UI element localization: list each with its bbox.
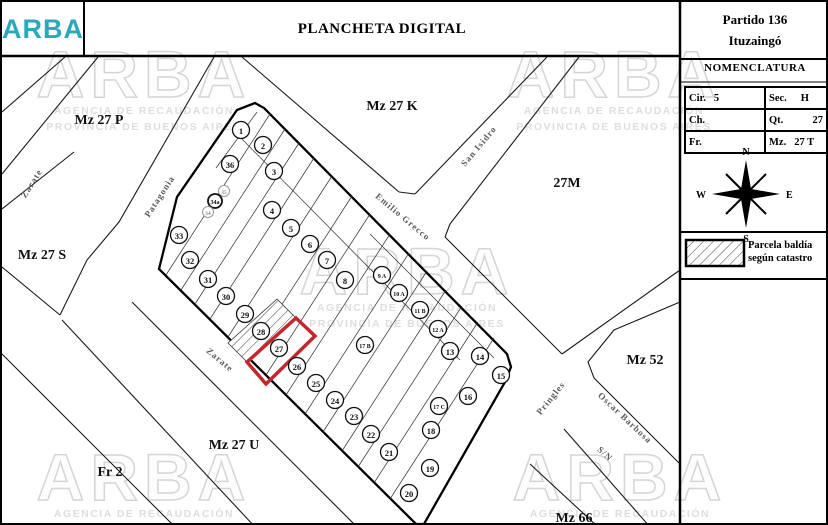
street-line xyxy=(562,270,680,354)
cell-ch: Ch. xyxy=(685,109,765,131)
legend-hatch-swatch xyxy=(686,240,744,266)
partido-number: Partido 136 xyxy=(680,9,828,30)
cell-value: 27 T xyxy=(794,137,814,148)
parcel-number: 9 A xyxy=(378,274,387,280)
block-label: Mz 27 S xyxy=(18,248,66,263)
block-label: 27M xyxy=(553,176,580,191)
parcel-number: 3 xyxy=(272,167,276,177)
table-row: Fr. Mz. 27 T xyxy=(685,131,827,153)
partido-name: Ituzaingó xyxy=(680,30,828,51)
partido-box: Partido 136 Ituzaingó xyxy=(680,2,828,59)
parcel-number: 26 xyxy=(293,362,302,372)
parcel-number: 12 A xyxy=(432,328,444,334)
parcel-number: 17 C xyxy=(433,405,445,411)
compass-east-label: E xyxy=(786,190,793,201)
watermark-subtext: PROVINCIA DE BUENOS AIRES xyxy=(309,318,504,330)
cell-key: Fr. xyxy=(689,137,702,148)
compass-star-icon xyxy=(712,160,780,228)
parcel-number: 15 xyxy=(497,371,506,381)
compass-west-label: W xyxy=(696,190,706,201)
parcel-number: 34a xyxy=(211,200,220,206)
cell-value: 27 xyxy=(813,115,824,126)
nomenclatura-title: NOMENCLATURA xyxy=(680,62,828,74)
parcel-number: 20 xyxy=(405,489,414,499)
parcel-number: 25 xyxy=(312,379,321,389)
parcel-number: 6 xyxy=(308,240,312,250)
watermark-subtext: AGENCIA DE RECAUDACIÓN xyxy=(54,507,234,520)
parcel-number: 29 xyxy=(241,310,250,320)
cell-key: Cir. xyxy=(689,93,706,104)
street-name-label: San Isidro xyxy=(459,124,499,168)
nomenclatura-table: Cir. 5 Sec. H Ch. Qt. 27 Fr. Mz. 27 T xyxy=(684,86,828,154)
parcel-number: 28 xyxy=(257,327,266,337)
street-name-label: Zarate xyxy=(19,167,44,199)
parcel-number: 30 xyxy=(222,292,231,302)
parcel-number: 5 xyxy=(289,224,293,234)
parcel-number: 27 xyxy=(275,344,284,354)
plancheta-digital-page: ARBAAGENCIA DE RECAUDACIÓNPROVINCIA DE B… xyxy=(0,0,828,525)
parcel-number: 13 xyxy=(446,347,455,357)
title-box: PLANCHETA DIGITAL xyxy=(84,2,680,56)
watermark-subtext: AGENCIA DE RECAUDACIÓN xyxy=(524,104,704,117)
arba-logo: ARBA xyxy=(2,14,84,45)
cell-key: Mz. xyxy=(769,137,786,148)
street-name-label: Pringles xyxy=(534,380,567,417)
block-label: Mz 27 P xyxy=(75,113,124,128)
legend-line1: Parcela baldía xyxy=(748,239,828,252)
cell-fr: Fr. xyxy=(685,131,765,153)
watermark-arba: ARBA xyxy=(513,440,728,514)
parcel-number: 19 xyxy=(426,464,435,474)
block-label: Mz 52 xyxy=(627,353,664,368)
parcel-number: 18 xyxy=(427,426,436,436)
cell-key: Sec. xyxy=(769,93,787,104)
parcel-number: 2 xyxy=(261,141,265,151)
parcel-number: 14 xyxy=(476,352,485,362)
parcel-number: 32 xyxy=(186,256,195,266)
parcel-number: 16 xyxy=(464,392,473,402)
cell-key: Qt. xyxy=(769,115,783,126)
parcel-number: 35 xyxy=(221,190,227,196)
cell-value: H xyxy=(801,93,809,104)
logo-box: ARBA xyxy=(2,2,84,56)
parcel-number: 11 B xyxy=(414,309,425,315)
street-line xyxy=(2,267,60,315)
block-label: Mz 27 K xyxy=(366,99,417,114)
parcel-number: 36 xyxy=(226,160,235,170)
street-name-label: Patagonia xyxy=(142,174,176,219)
page-title: PLANCHETA DIGITAL xyxy=(298,21,466,38)
cell-key: Ch. xyxy=(689,115,705,126)
cell-mz: Mz. 27 T xyxy=(765,131,827,153)
street-name-label: Zarate xyxy=(204,346,235,374)
cell-sec: Sec. H xyxy=(765,87,827,109)
compass-rose: N S E W xyxy=(696,147,793,245)
block-label: Mz 27 U xyxy=(209,438,260,453)
cell-value: 5 xyxy=(714,93,719,104)
parcel-number: 10 A xyxy=(393,292,405,298)
cell-qt: Qt. 27 xyxy=(765,109,827,131)
parcel-number: 33 xyxy=(175,231,184,241)
table-row: Cir. 5 Sec. H xyxy=(685,87,827,109)
legend-line2: según catastro xyxy=(748,252,828,265)
block-label: Fr 2 xyxy=(97,465,122,480)
parcel-number: 21 xyxy=(385,448,394,458)
parcel-number: 22 xyxy=(367,430,376,440)
parcel-number: 17 B xyxy=(359,344,371,350)
parcel-number: 31 xyxy=(204,275,213,285)
parcel-number: 23 xyxy=(350,412,359,422)
legend-caption: Parcela baldía según catastro xyxy=(748,239,828,265)
street-name-label: Oscar Barbosa xyxy=(596,390,654,445)
parcel-number: 1 xyxy=(239,126,243,136)
street-line xyxy=(399,192,415,194)
parcel-number: 34 xyxy=(205,211,211,217)
cell-cir: Cir. 5 xyxy=(685,87,765,109)
parcel-number: 24 xyxy=(331,396,340,406)
watermark-subtext: AGENCIA DE RECAUDACIÓN xyxy=(317,301,497,314)
table-row: Ch. Qt. 27 xyxy=(685,109,827,131)
block-label: Mz 66 xyxy=(556,511,593,525)
cadastral-map: ARBAAGENCIA DE RECAUDACIÓNPROVINCIA DE B… xyxy=(2,2,828,525)
watermark-subtext: PROVINCIA DE BUENOS AIRES xyxy=(516,121,711,133)
parcel-number: 8 xyxy=(343,276,347,286)
